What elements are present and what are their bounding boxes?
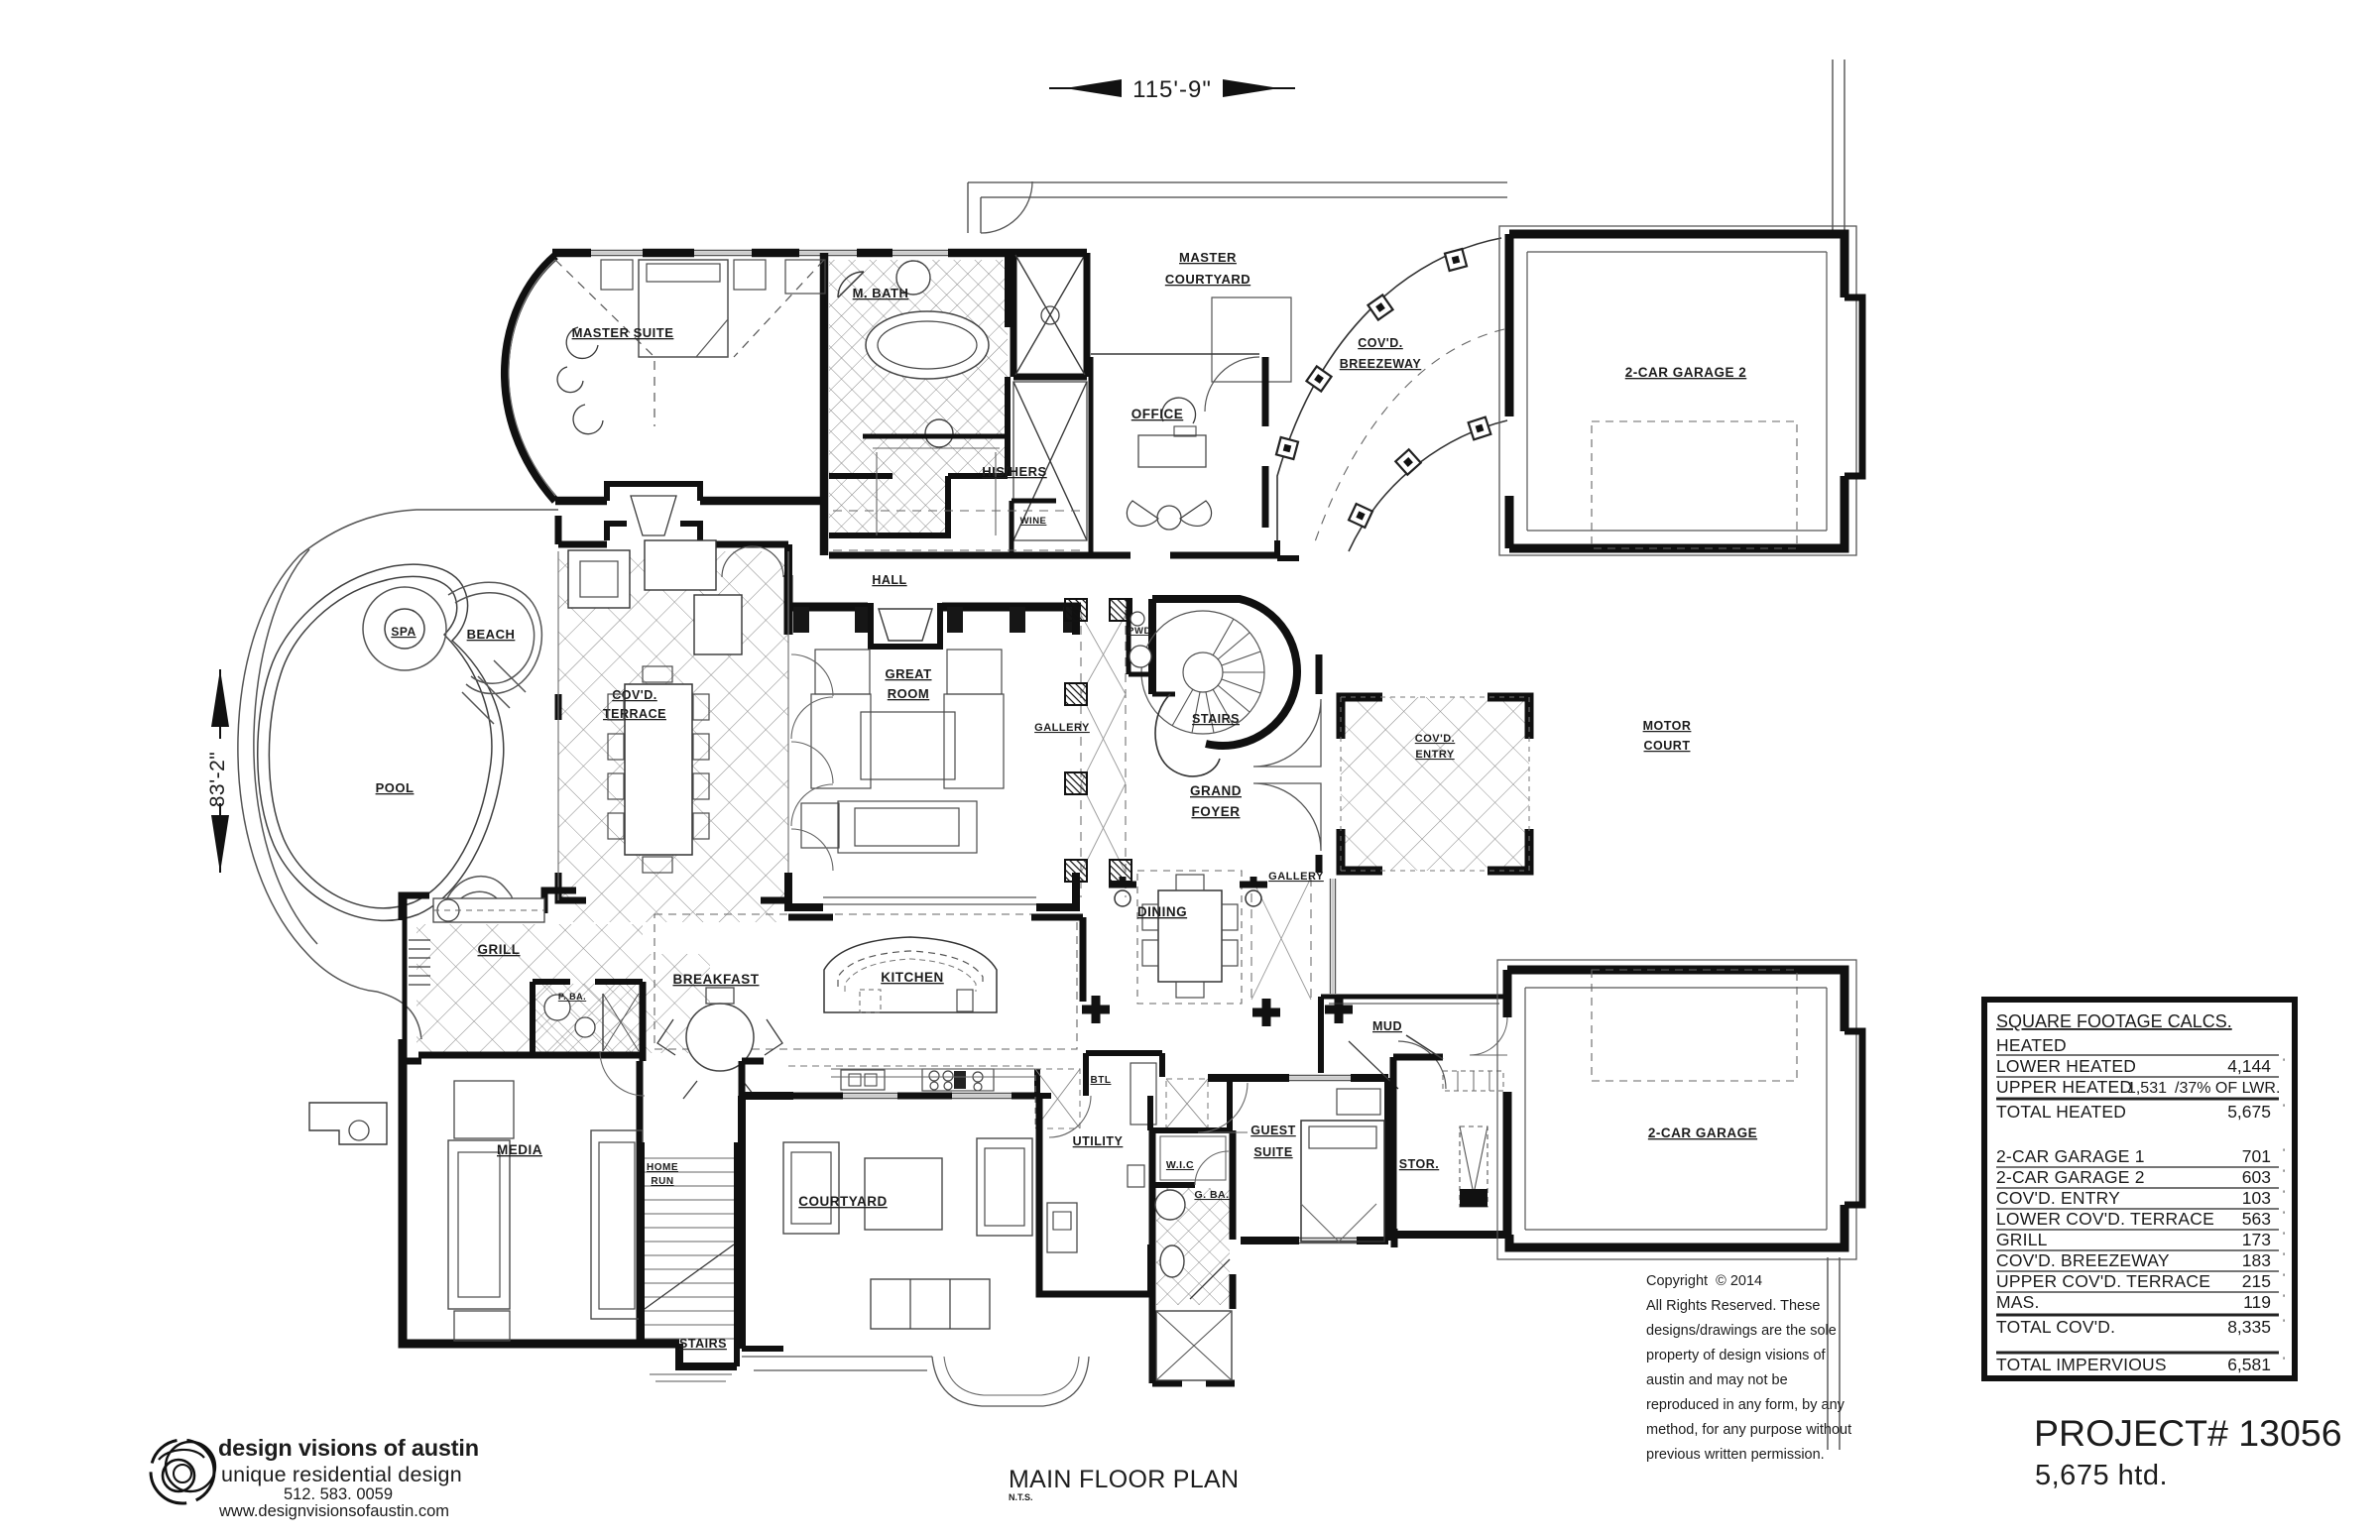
- svg-text:RUN: RUN: [651, 1176, 673, 1187]
- svg-text:STAIRS: STAIRS: [1192, 712, 1240, 726]
- svg-text:': ': [2283, 1293, 2285, 1305]
- svg-text:': ': [2283, 1318, 2285, 1330]
- svg-text:BREAKFAST: BREAKFAST: [672, 972, 759, 987]
- svg-text:MUD: MUD: [1372, 1019, 1402, 1033]
- svg-text:UPPER HEATED: UPPER HEATED: [1996, 1077, 2132, 1097]
- svg-text:173: 173: [2242, 1230, 2271, 1249]
- svg-text:UPPER COV'D. TERRACE: UPPER COV'D. TERRACE: [1996, 1271, 2210, 1291]
- svg-text:6,581: 6,581: [2227, 1355, 2271, 1374]
- svg-text:unique residential design: unique residential design: [221, 1463, 462, 1486]
- svg-text:method, for any purpose withou: method, for any purpose without: [1646, 1422, 1851, 1438]
- svg-text:103: 103: [2242, 1188, 2271, 1208]
- svg-text:MAS.: MAS.: [1996, 1292, 2040, 1312]
- svg-text:N.T.S.: N.T.S.: [1009, 1492, 1033, 1502]
- svg-text:': ': [2283, 1210, 2285, 1222]
- svg-text:WINE: WINE: [1020, 516, 1047, 527]
- svg-text:LOWER COV'D. TERRACE: LOWER COV'D. TERRACE: [1996, 1209, 2214, 1229]
- svg-text:4,144: 4,144: [2227, 1056, 2271, 1076]
- svg-text:': ': [2283, 1356, 2285, 1367]
- svg-text:SQUARE FOOTAGE CALCS.: SQUARE FOOTAGE CALCS.: [1996, 1011, 2232, 1031]
- svg-text:DINING: DINING: [1137, 904, 1187, 919]
- svg-text:2-CAR GARAGE: 2-CAR GARAGE: [1648, 1125, 1757, 1140]
- svg-text:ROOM: ROOM: [888, 686, 929, 701]
- svg-text:GRILL: GRILL: [1996, 1230, 2048, 1249]
- svg-text:M. BATH: M. BATH: [853, 286, 909, 300]
- svg-text:SPA: SPA: [391, 625, 416, 639]
- svg-text:': ': [2283, 1272, 2285, 1284]
- svg-text:701: 701: [2242, 1146, 2271, 1166]
- svg-text:8,335: 8,335: [2227, 1317, 2271, 1337]
- svg-text:1,531: 1,531: [2127, 1080, 2167, 1097]
- svg-text:512. 583. 0059: 512. 583. 0059: [284, 1485, 393, 1503]
- svg-text:POOL: POOL: [376, 780, 415, 795]
- svg-text:COV'D. ENTRY: COV'D. ENTRY: [1996, 1188, 2120, 1208]
- svg-text:MEDIA: MEDIA: [497, 1142, 542, 1157]
- svg-text:BREEZEWAY: BREEZEWAY: [1340, 357, 1422, 371]
- svg-text:HEATED: HEATED: [1996, 1035, 2067, 1055]
- svg-text:603: 603: [2242, 1167, 2271, 1187]
- svg-text:': ': [2283, 1057, 2285, 1069]
- svg-text:115'-9": 115'-9": [1132, 76, 1212, 103]
- svg-text:5,675 htd.: 5,675 htd.: [2035, 1460, 2168, 1491]
- svg-text:83'-2": 83'-2": [206, 752, 229, 808]
- svg-text:www.designvisionsofaustin.com: www.designvisionsofaustin.com: [218, 1502, 449, 1520]
- svg-text:TERRACE: TERRACE: [603, 707, 666, 721]
- svg-text:': ': [2283, 1168, 2285, 1180]
- svg-text:GRAND: GRAND: [1190, 783, 1242, 798]
- svg-text:HALL: HALL: [872, 573, 906, 587]
- svg-text:2-CAR GARAGE 2: 2-CAR GARAGE 2: [1625, 365, 1747, 380]
- svg-text:Copyright © 2014: Copyright © 2014: [1646, 1273, 1762, 1289]
- svg-text:MOTOR: MOTOR: [1643, 719, 1692, 733]
- svg-text:reproduced in any form, by any: reproduced in any form, by any: [1646, 1397, 1845, 1413]
- svg-text:W.I.C: W.I.C: [1166, 1159, 1194, 1171]
- svg-text:design visions of austin: design visions of austin: [218, 1435, 479, 1461]
- svg-text:LOWER HEATED: LOWER HEATED: [1996, 1056, 2136, 1076]
- svg-text:MASTER SUITE: MASTER SUITE: [572, 325, 674, 340]
- svg-text:215: 215: [2242, 1271, 2271, 1291]
- svg-text:PROJECT# 13056: PROJECT# 13056: [2034, 1412, 2342, 1454]
- svg-text:UTILITY: UTILITY: [1073, 1134, 1124, 1148]
- svg-text:COV'D.: COV'D.: [1415, 733, 1455, 745]
- svg-text:183: 183: [2242, 1250, 2271, 1270]
- svg-text:KITCHEN: KITCHEN: [881, 970, 944, 985]
- svg-text:': ': [2283, 1147, 2285, 1159]
- svg-text:2-CAR GARAGE 1: 2-CAR GARAGE 1: [1996, 1146, 2145, 1166]
- svg-text:FOYER: FOYER: [1191, 804, 1240, 819]
- svg-text:/37% OF LWR.: /37% OF LWR.: [2175, 1080, 2280, 1097]
- svg-text:BEACH: BEACH: [467, 627, 516, 642]
- svg-text:STOR.: STOR.: [1399, 1157, 1439, 1171]
- svg-text:563: 563: [2242, 1209, 2271, 1229]
- svg-text:GALLERY: GALLERY: [1268, 871, 1324, 883]
- svg-text:austin and may not be: austin and may not be: [1646, 1372, 1788, 1388]
- svg-text:previous written permission.: previous written permission.: [1646, 1447, 1825, 1463]
- svg-text:ENTRY: ENTRY: [1415, 749, 1455, 761]
- svg-text:': ': [2283, 1189, 2285, 1201]
- svg-text:119: 119: [2243, 1292, 2271, 1312]
- svg-text:designs/drawings are the sole: designs/drawings are the sole: [1646, 1323, 1837, 1339]
- svg-text:COV'D.: COV'D.: [1358, 336, 1403, 350]
- svg-text:': ': [2283, 1251, 2285, 1263]
- svg-text:MAIN FLOOR PLAN: MAIN FLOOR PLAN: [1009, 1466, 1239, 1493]
- svg-text:COURTYARD: COURTYARD: [1165, 272, 1250, 287]
- svg-text:OFFICE: OFFICE: [1131, 407, 1184, 421]
- svg-text:property of design visions of: property of design visions of: [1646, 1348, 1827, 1363]
- svg-text:G. BA.: G. BA.: [1194, 1189, 1229, 1201]
- svg-text:TOTAL HEATED: TOTAL HEATED: [1996, 1102, 2126, 1122]
- svg-text:COV'D. BREEZEWAY: COV'D. BREEZEWAY: [1996, 1250, 2170, 1270]
- svg-text:P. BA.: P. BA.: [558, 992, 586, 1002]
- svg-text:5,675: 5,675: [2227, 1102, 2271, 1122]
- svg-text:': ': [2283, 1103, 2285, 1115]
- svg-text:TOTAL COV'D.: TOTAL COV'D.: [1996, 1317, 2115, 1337]
- svg-text:GALLERY: GALLERY: [1034, 722, 1090, 734]
- svg-text:MASTER: MASTER: [1179, 250, 1237, 265]
- svg-text:': ': [2283, 1231, 2285, 1243]
- svg-text:COV'D.: COV'D.: [612, 688, 657, 702]
- svg-text:PWD: PWD: [1128, 626, 1151, 637]
- svg-text:TOTAL IMPERVIOUS: TOTAL IMPERVIOUS: [1996, 1355, 2167, 1374]
- svg-text:2-CAR GARAGE 2: 2-CAR GARAGE 2: [1996, 1167, 2145, 1187]
- svg-text:COURT: COURT: [1644, 739, 1691, 753]
- svg-text:HOME: HOME: [647, 1162, 678, 1173]
- svg-text:All Rights Reserved. These: All Rights Reserved. These: [1646, 1298, 1820, 1314]
- svg-text:GRILL: GRILL: [478, 942, 521, 957]
- svg-text:STAIRS: STAIRS: [679, 1337, 727, 1351]
- svg-text:BTL: BTL: [1091, 1075, 1112, 1086]
- svg-text:GREAT: GREAT: [885, 666, 931, 681]
- svg-text:SUITE: SUITE: [1253, 1145, 1292, 1159]
- svg-text:GUEST: GUEST: [1250, 1124, 1296, 1137]
- svg-text:HIS/HERS: HIS/HERS: [982, 464, 1046, 479]
- svg-text:COURTYARD: COURTYARD: [798, 1194, 888, 1209]
